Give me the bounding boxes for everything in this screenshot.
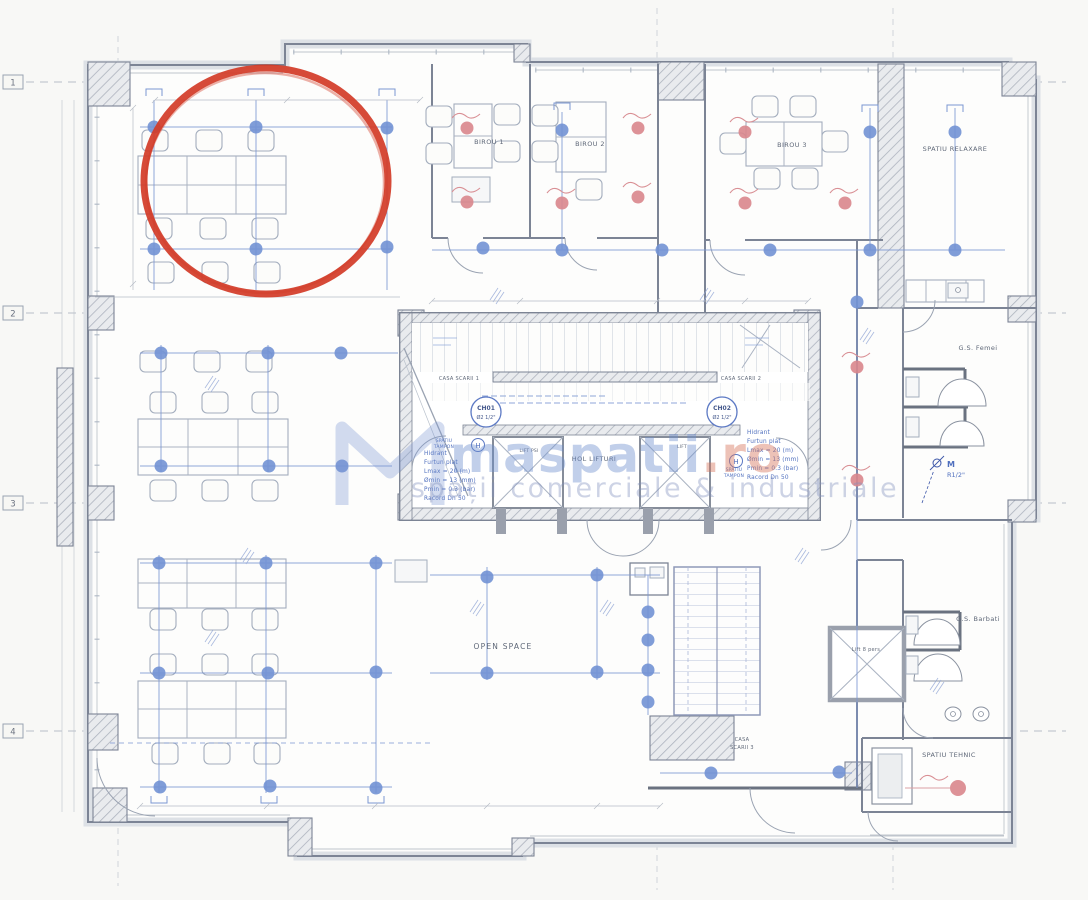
sprinkler-blue [705, 767, 718, 780]
sprinkler-blue [154, 781, 167, 794]
chair [196, 130, 222, 151]
hydrant-cabinet-ch01: CH01 Ø2 1/2" [471, 397, 501, 427]
room-label-stair3-1: CASA [735, 737, 750, 743]
sprinkler-blue [155, 460, 168, 473]
sprinkler-blue [949, 244, 962, 257]
chair [148, 262, 174, 283]
sprinkler-blue [949, 126, 962, 139]
valve-label-size: R1/2" [947, 471, 965, 479]
chair [150, 480, 176, 501]
chair [252, 392, 278, 413]
chair [252, 609, 278, 630]
sprinkler-blue [864, 244, 877, 257]
chair [202, 654, 228, 675]
stair-treads [412, 323, 808, 372]
kitchen-counter [906, 280, 984, 302]
chair [790, 96, 816, 117]
sprinkler-red [461, 196, 474, 209]
sprinkler-blue [481, 571, 494, 584]
chair [754, 168, 780, 189]
sprinkler-blue [262, 347, 275, 360]
room-label-birou3: BIROU 3 [777, 141, 807, 149]
sprinkler-blue [556, 124, 569, 137]
lift-8-pers [830, 628, 904, 700]
room-label-birou1: BIROU 1 [474, 138, 504, 146]
sink [906, 417, 919, 437]
room-label-relaxare: SPATIU RELAXARE [923, 145, 988, 153]
sprinkler-blue [153, 667, 166, 680]
grid-row-label: 1 [10, 79, 15, 89]
floor-plan-scan: 1 2 3 4 [0, 0, 1088, 900]
sprinkler-blue [851, 296, 864, 309]
sink [906, 656, 918, 674]
sprinkler-blue [642, 606, 655, 619]
sprinkler-blue [642, 696, 655, 709]
watermark-tagline: spații comerciale & industriale [411, 473, 899, 504]
chair [576, 179, 602, 200]
sprinkler-blue [335, 347, 348, 360]
sprinkler-red [632, 122, 645, 135]
chair [150, 609, 176, 630]
sprinkler-blue [250, 121, 263, 134]
technical-equipment [872, 748, 912, 804]
room-label-stair2: CASA SCARII 2 [721, 376, 761, 382]
hydrant-id: CH02 [713, 405, 731, 412]
stair-landing [493, 372, 717, 382]
chair [150, 392, 176, 413]
sink [906, 377, 919, 397]
room-label-lift8: Lift 8 pers [852, 647, 880, 653]
chair [254, 262, 280, 283]
sprinkler-blue [262, 667, 275, 680]
sprinkler-red [556, 197, 569, 210]
grid-row-label: 4 [10, 728, 15, 738]
grid-marker-4: 4 [3, 724, 23, 738]
sprinkler-blue [263, 460, 276, 473]
sprinkler-blue [260, 557, 273, 570]
closet-room [630, 563, 668, 595]
chair [792, 168, 818, 189]
sprinkler-blue [481, 667, 494, 680]
hydrant-size: Ø2 1/2" [712, 414, 731, 421]
sprinkler-blue [153, 557, 166, 570]
sprinkler-blue [864, 126, 877, 139]
urinal [973, 707, 989, 721]
sprinkler-blue [148, 243, 161, 256]
hydrant-cabinet-ch02: CH02 Ø2 1/2" [707, 397, 737, 427]
hydrant-size: Ø2 1/2" [476, 414, 495, 421]
chair [204, 743, 230, 764]
room-label-tehnic: SPATIU TEHNIC [922, 751, 976, 759]
cabinet [395, 560, 427, 582]
sprinkler-red [461, 122, 474, 135]
grid-row-label: 3 [10, 500, 15, 510]
sink [948, 283, 968, 298]
chair [252, 480, 278, 501]
sprinkler-blue [833, 766, 846, 779]
chair [822, 131, 848, 152]
sink [906, 616, 918, 634]
sprinkler-blue [656, 244, 669, 257]
sprinkler-blue [370, 666, 383, 679]
chair [426, 106, 452, 127]
sprinkler-blue [591, 569, 604, 582]
sprinkler-blue [370, 557, 383, 570]
sprinkler-blue [591, 666, 604, 679]
chair [248, 130, 274, 151]
hydrant-id: CH01 [477, 405, 495, 412]
sprinkler-blue [250, 243, 263, 256]
sprinkler-blue [381, 241, 394, 254]
sprinkler-blue [155, 347, 168, 360]
sprinkler-blue [556, 244, 569, 257]
sprinkler-blue [642, 664, 655, 677]
chair [202, 392, 228, 413]
grid-row-label: 2 [10, 310, 15, 320]
sprinkler-red [950, 780, 966, 796]
room-label-gs-barbati: G.S. Barbati [956, 615, 1000, 623]
chair [532, 141, 558, 162]
grid-marker-3: 3 [3, 496, 23, 510]
urinal [945, 707, 961, 721]
chair [200, 218, 226, 239]
room-label-gs-femei: G.S. Femei [959, 344, 998, 352]
sprinkler-blue [381, 122, 394, 135]
sprinkler-blue [264, 780, 277, 793]
sprinkler-red [632, 191, 645, 204]
chair [752, 96, 778, 117]
chair [494, 104, 520, 125]
chair [152, 743, 178, 764]
sprinkler-red [851, 361, 864, 374]
sprinkler-blue [370, 782, 383, 795]
sprinkler-blue [764, 244, 777, 257]
sprinkler-red [739, 197, 752, 210]
sprinkler-blue [477, 242, 490, 255]
room-label-stair3-2: SCARII 3 [730, 745, 754, 751]
sprinkler-blue [642, 634, 655, 647]
chair [426, 143, 452, 164]
room-label-birou2: BIROU 2 [575, 140, 605, 148]
grid-marker-2: 2 [3, 306, 23, 320]
valve-label-m: M [947, 460, 955, 469]
room-label-stair1: CASA SCARII 1 [439, 376, 479, 382]
chair [202, 609, 228, 630]
chair [194, 351, 220, 372]
chair [254, 743, 280, 764]
floor-plan-drawing: 1 2 3 4 [0, 0, 1088, 900]
escape-stair [674, 567, 760, 715]
sprinkler-red [739, 126, 752, 139]
chair [202, 480, 228, 501]
grid-marker-1: 1 [3, 75, 23, 89]
room-label-open-space: OPEN SPACE [474, 642, 533, 651]
sprinkler-red [839, 197, 852, 210]
